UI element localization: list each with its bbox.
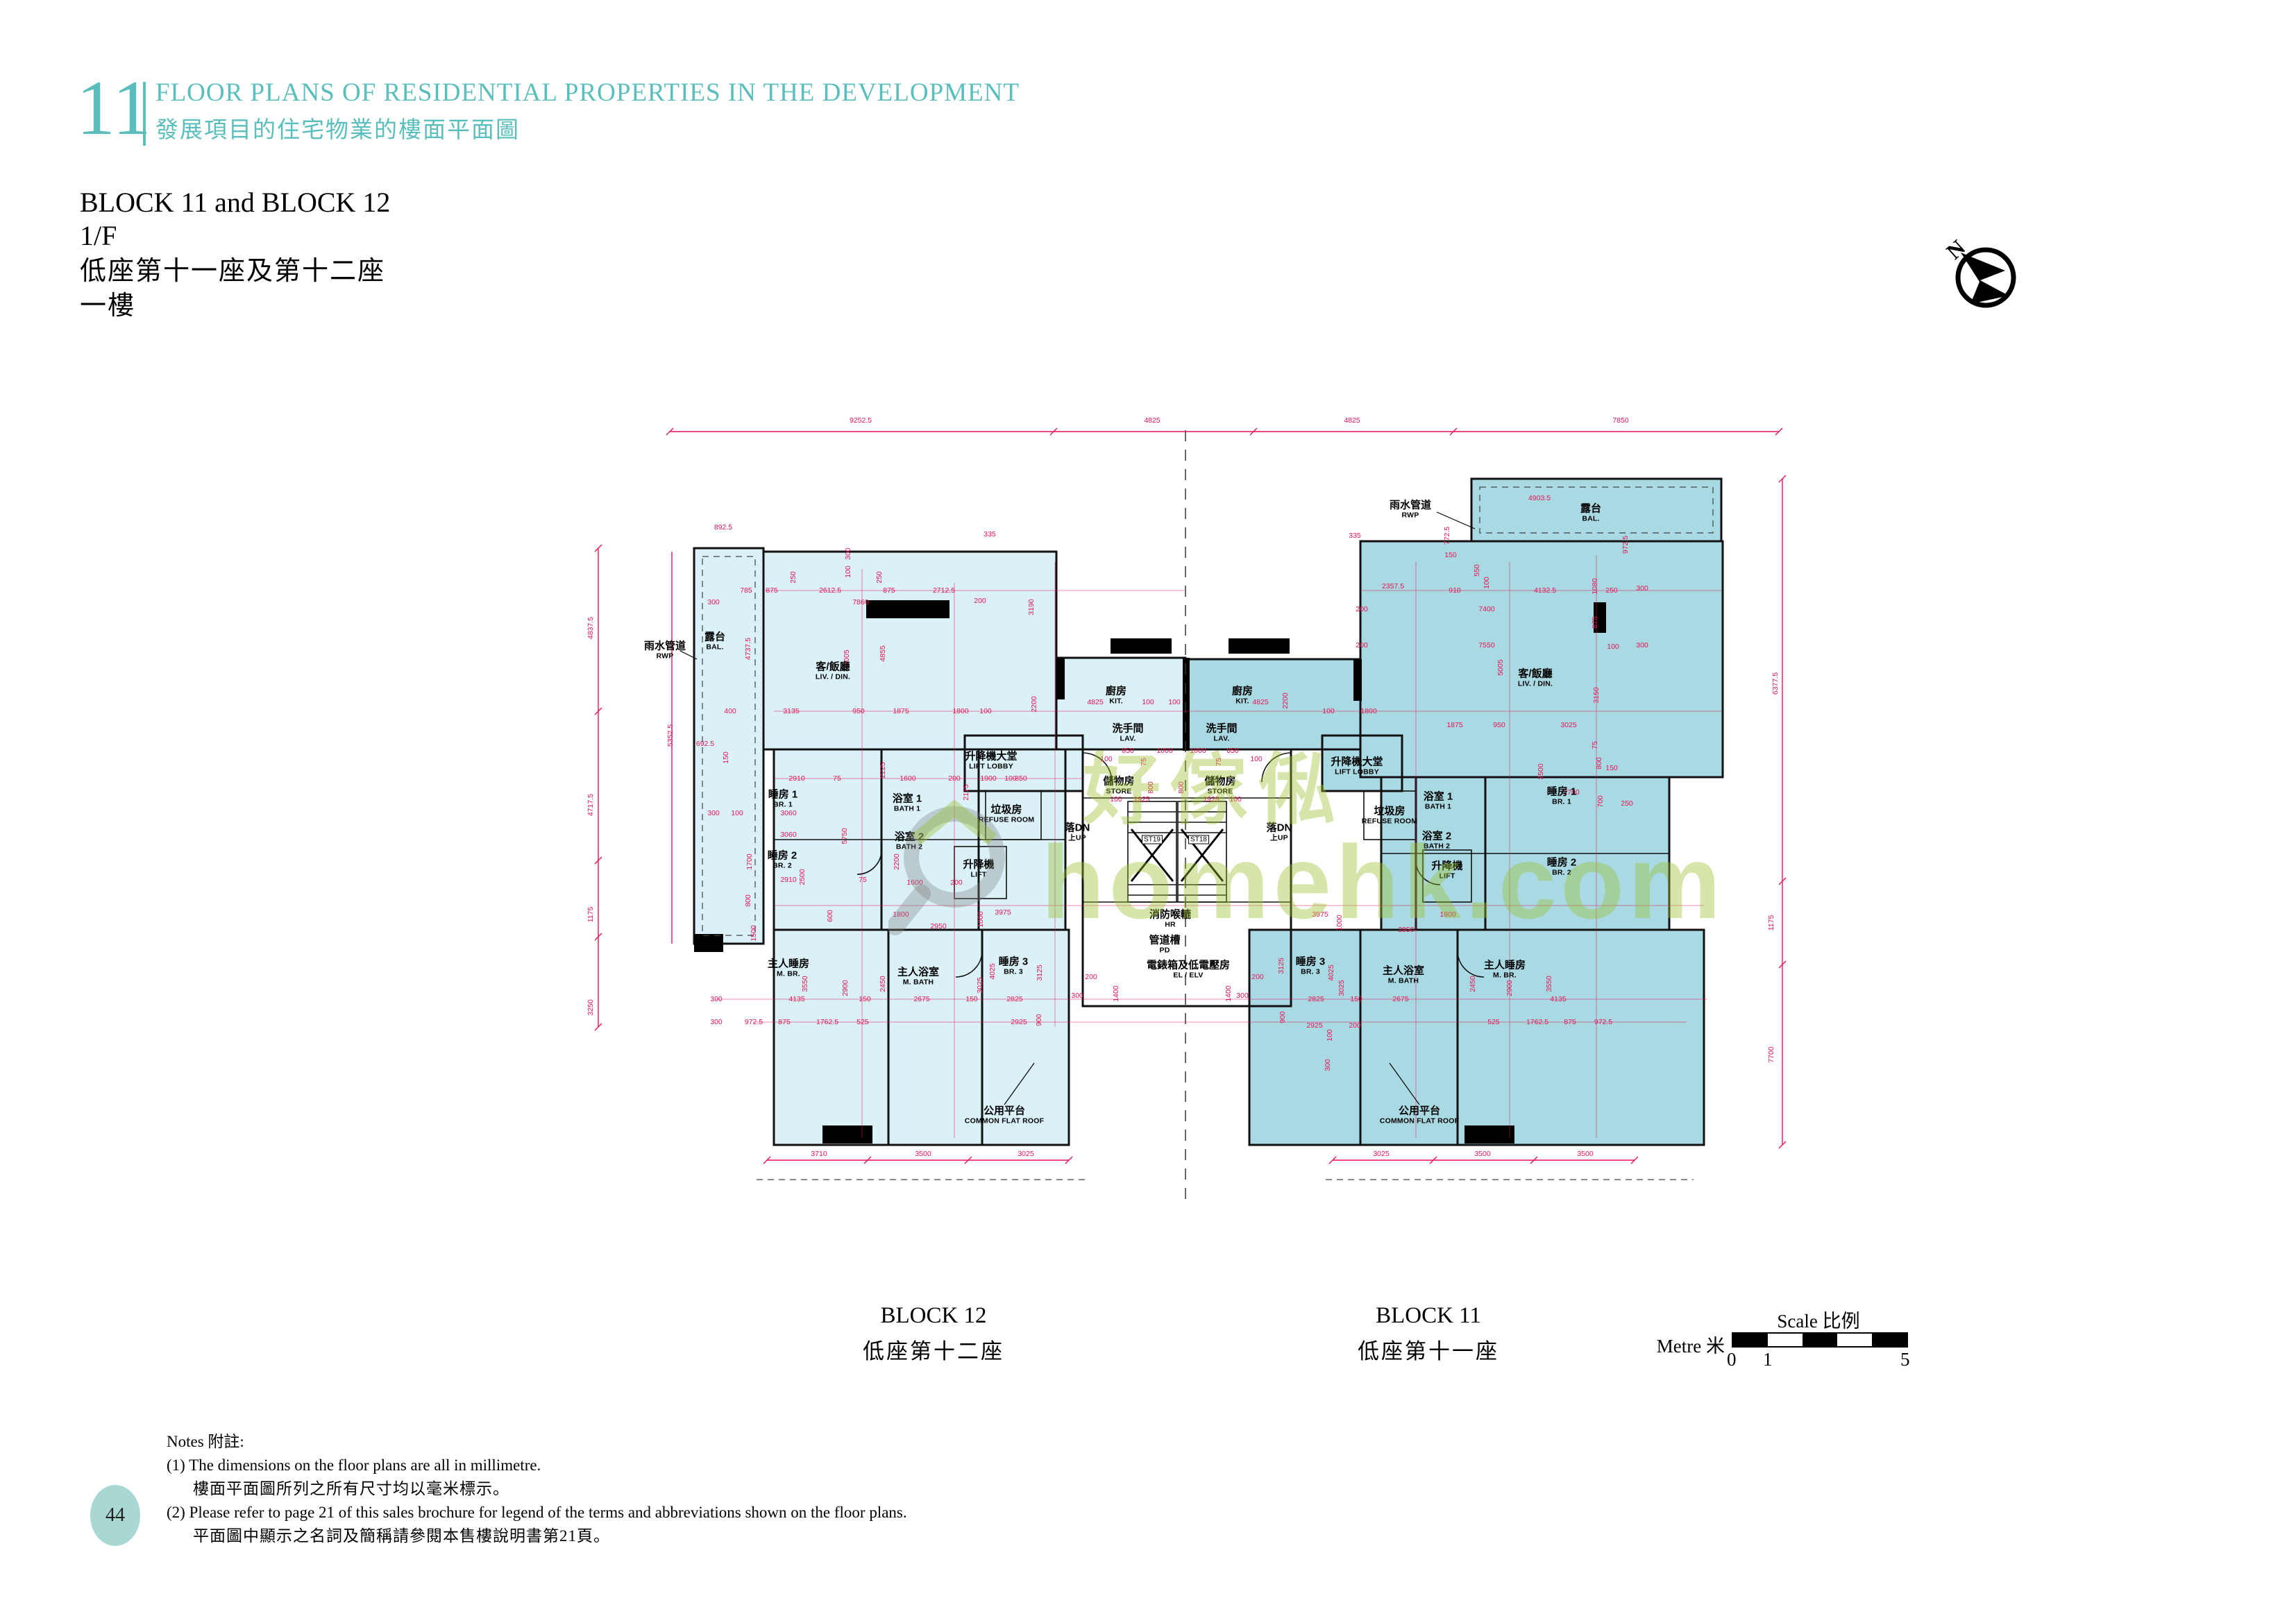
room-label: 升降機LIFT (1431, 861, 1462, 881)
room-label: 睡房 3BR. 3 (999, 957, 1029, 977)
room-label-zh: 浴室 1 (893, 794, 922, 806)
room-label-zh: 睡房 1 (768, 790, 798, 801)
room-label: 垃圾房REFUSE ROOM (979, 805, 1034, 825)
room-label-en: M. BATH (897, 979, 939, 987)
room-label-en: EL / ELV (1147, 972, 1230, 980)
room-label-zh: 客/飯廳 (816, 662, 850, 674)
room-label-en: BR. 2 (1547, 869, 1577, 878)
room-label-en: BATH 1 (893, 806, 922, 814)
room-label-en: RWP (644, 653, 686, 661)
room-label-en: REFUSE ROOM (979, 817, 1034, 825)
room-label: 露台BAL. (704, 632, 725, 652)
room-label-en: COMMON FLAT ROOF (1380, 1118, 1459, 1126)
room-label-en: BATH 1 (1424, 804, 1453, 812)
room-label-zh: 儲物房 (1103, 776, 1134, 788)
room-label: 睡房 2BR. 2 (768, 851, 797, 871)
room-label-en: BATH 2 (1422, 843, 1452, 851)
room-label-zh: 睡房 1 (1547, 787, 1577, 799)
room-label-zh: 睡房 2 (768, 851, 797, 863)
room-label-en: LIFT LOBBY (1331, 769, 1383, 777)
stair-tag: ST19 (1142, 835, 1163, 844)
room-label: 升降機大堂LIFT LOBBY (965, 751, 1017, 772)
room-label-en: BAL. (1580, 516, 1601, 524)
room-label-en: LIFT (963, 872, 994, 880)
room-label-zh: 洗手間 (1206, 724, 1237, 736)
room-label: 浴室 2BATH 2 (895, 832, 925, 852)
room-label-zh: 雨水管道 (644, 641, 686, 653)
room-label-en: BAL. (704, 644, 725, 652)
room-label: 洗手間LAV. (1112, 724, 1143, 744)
room-label: 睡房 3BR. 3 (1296, 957, 1326, 977)
room-label-zh: 廚房 (1106, 686, 1126, 698)
room-label-zh: 垃圾房 (979, 805, 1034, 817)
room-label: 雨水管道RWP (1390, 500, 1431, 520)
room-label-zh: 客/飯廳 (1518, 669, 1553, 681)
room-label-zh: 公用平台 (965, 1106, 1044, 1118)
room-label: 浴室 1BATH 1 (1424, 792, 1453, 812)
room-label-en: BR. 1 (768, 801, 798, 810)
room-label: 消防喉轆HR (1149, 910, 1191, 930)
room-label-zh: 主人睡房 (768, 959, 809, 971)
room-label: 管道槽PD (1149, 935, 1180, 955)
room-label-zh: 主人睡房 (1484, 960, 1526, 972)
room-label: 浴室 1BATH 1 (893, 794, 922, 814)
room-label-zh: 升降機 (963, 860, 994, 872)
room-label-en: BR. 1 (1547, 799, 1577, 807)
room-label: 雨水管道RWP (644, 641, 686, 661)
room-label-zh: 露台 (704, 632, 725, 644)
room-label-zh: 管道槽 (1149, 935, 1180, 947)
room-label-en: HR (1149, 921, 1191, 930)
room-label-zh: 主人浴室 (897, 967, 939, 979)
room-label-en: STORE (1103, 788, 1134, 797)
room-label: 客/飯廳LIV. / DIN. (1518, 669, 1553, 689)
room-label-zh: 睡房 3 (1296, 957, 1326, 969)
room-label-zh: 主人浴室 (1383, 966, 1424, 978)
room-label-en: RWP (1390, 512, 1431, 520)
room-label-en: PD (1149, 947, 1180, 955)
room-label: 落DN上UP (1267, 823, 1292, 843)
room-label: 主人睡房M. BR. (1484, 960, 1526, 980)
room-label: 落DN上UP (1065, 823, 1090, 843)
room-label: 垃圾房REFUSE ROOM (1362, 806, 1417, 826)
room-label: 廚房KIT. (1232, 686, 1253, 706)
room-label: 公用平台COMMON FLAT ROOF (1380, 1106, 1459, 1126)
room-label-en: COMMON FLAT ROOF (965, 1118, 1044, 1126)
room-label-en: LIFT LOBBY (965, 763, 1017, 772)
room-label-en: LAV. (1206, 736, 1237, 744)
room-label-zh: 雨水管道 (1390, 500, 1431, 512)
room-label-layer: 露台BAL.客/飯廳LIV. / DIN.廚房KIT.洗手間LAV.儲物房STO… (0, 0, 2296, 1623)
room-label: 廚房KIT. (1106, 686, 1126, 706)
room-label: 公用平台COMMON FLAT ROOF (965, 1106, 1044, 1126)
room-label: 主人浴室M. BATH (897, 967, 939, 987)
room-label-zh: 浴室 2 (895, 832, 925, 844)
room-label-zh: 儲物房 (1204, 776, 1235, 788)
room-label-zh: 垃圾房 (1362, 806, 1417, 818)
room-label: 露台BAL. (1580, 504, 1601, 524)
room-label-en: 上UP (1267, 835, 1292, 843)
room-label-en: 上UP (1065, 835, 1090, 843)
room-label-en: LAV. (1112, 736, 1143, 744)
room-label-en: KIT. (1106, 698, 1126, 706)
room-label-zh: 浴室 2 (1422, 831, 1452, 843)
room-label: 主人浴室M. BATH (1383, 966, 1424, 986)
room-label-zh: 升降機大堂 (1331, 757, 1383, 769)
room-label: 睡房 1BR. 1 (768, 790, 798, 810)
room-label: 睡房 2BR. 2 (1547, 858, 1577, 878)
room-label: 浴室 2BATH 2 (1422, 831, 1452, 851)
stair-tag: ST18 (1188, 835, 1209, 844)
room-label: 升降機大堂LIFT LOBBY (1331, 757, 1383, 777)
room-label-zh: 浴室 1 (1424, 792, 1453, 804)
room-label-en: BR. 2 (768, 863, 797, 871)
room-label-zh: 睡房 3 (999, 957, 1029, 969)
room-label-en: LIV. / DIN. (1518, 681, 1553, 689)
room-label-zh: 落DN (1267, 823, 1292, 835)
room-label-zh: 電錶箱及低電壓房 (1147, 960, 1230, 972)
room-label-zh: 公用平台 (1380, 1106, 1459, 1118)
room-label-en: M. BR. (1484, 972, 1526, 980)
room-label-en: LIFT (1431, 873, 1462, 881)
room-label-zh: 落DN (1065, 823, 1090, 835)
room-label: 電錶箱及低電壓房EL / ELV (1147, 960, 1230, 980)
room-label-zh: 洗手間 (1112, 724, 1143, 736)
room-label-en: KIT. (1232, 698, 1253, 706)
room-label-zh: 升降機 (1431, 861, 1462, 873)
room-label-en: M. BR. (768, 971, 809, 979)
room-label-en: BR. 3 (999, 969, 1029, 977)
room-label-zh: 廚房 (1232, 686, 1253, 698)
room-label-zh: 露台 (1580, 504, 1601, 516)
room-label-en: LIV. / DIN. (816, 674, 850, 682)
room-label: 儲物房STORE (1103, 776, 1134, 797)
room-label-en: BATH 2 (895, 844, 925, 852)
room-label: 客/飯廳LIV. / DIN. (816, 662, 850, 682)
room-label: 睡房 1BR. 1 (1547, 787, 1577, 807)
room-label-zh: 升降機大堂 (965, 751, 1017, 763)
room-label: 升降機LIFT (963, 860, 994, 880)
room-label-zh: 睡房 2 (1547, 858, 1577, 869)
room-label-en: BR. 3 (1296, 969, 1326, 977)
room-label-zh: 消防喉轆 (1149, 910, 1191, 921)
room-label-en: M. BATH (1383, 978, 1424, 986)
room-label: 主人睡房M. BR. (768, 959, 809, 979)
room-label: 洗手間LAV. (1206, 724, 1237, 744)
room-label-en: STORE (1204, 788, 1235, 797)
room-label: 儲物房STORE (1204, 776, 1235, 797)
room-label-en: REFUSE ROOM (1362, 818, 1417, 826)
